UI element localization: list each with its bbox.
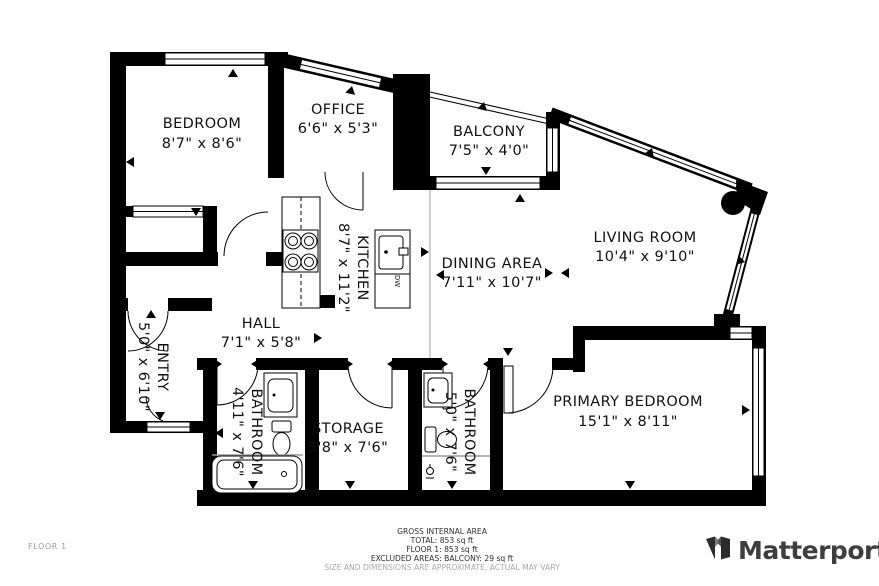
room-label-kitchen: KITCHEN 8'7" x 11'2"	[335, 223, 370, 313]
room-name: BEDROOM	[163, 116, 242, 132]
matterport-logo-icon	[706, 537, 730, 560]
wall	[110, 206, 133, 217]
direction-marker	[345, 85, 357, 95]
room-label-balcony: BALCONY 7'5" x 4'0"	[449, 124, 529, 159]
direction-marker	[228, 69, 238, 77]
stove-icon	[283, 230, 318, 272]
floorplan-canvas: DW	[0, 0, 879, 586]
matterport-wordmark: Matterport	[738, 536, 879, 565]
direction-marker	[483, 360, 490, 369]
direction-marker	[314, 333, 322, 343]
direction-marker	[515, 194, 525, 202]
direction-marker	[503, 348, 513, 356]
dishwasher-icon: DW	[393, 275, 401, 287]
direction-marker	[481, 167, 491, 175]
door-leaf	[504, 366, 513, 413]
sliding-closet-door	[133, 206, 203, 217]
area-title: GROSS INTERNAL AREA	[397, 527, 488, 536]
wall-diagonal-office	[280, 53, 401, 94]
toilet-icon	[272, 421, 291, 456]
matterport-logo: Matterport	[706, 536, 879, 565]
door-arc	[508, 366, 553, 413]
room-name: HALL	[242, 316, 281, 332]
room-label-office: OFFICE 6'6" x 5'3"	[298, 102, 378, 137]
room-label-bedroom: BEDROOM 8'7" x 8'6"	[162, 116, 242, 152]
wall	[266, 252, 282, 266]
footer: FLOOR 1 GROSS INTERNAL AREA TOTAL: 853 s…	[28, 527, 879, 572]
room-name: LIVING ROOM	[593, 230, 696, 246]
floor-label: FLOOR 1	[28, 542, 67, 551]
area-floor1: FLOOR 1: 853 sq ft	[406, 545, 477, 554]
direction-marker	[742, 405, 750, 415]
door-arc	[348, 364, 392, 408]
window	[436, 177, 540, 189]
area-disclaimer: SIZE AND DIMENSIONS ARE APPROXIMATE, ACT…	[324, 563, 560, 572]
room-name: BALCONY	[453, 124, 525, 140]
direction-marker	[251, 360, 258, 369]
room-name: OFFICE	[311, 102, 365, 118]
wall	[197, 358, 215, 370]
direction-marker	[346, 360, 353, 369]
direction-marker	[155, 412, 165, 420]
wall	[110, 52, 126, 433]
wall	[495, 358, 503, 377]
room-dims: 8'7" x 8'6"	[162, 136, 242, 152]
wall	[110, 252, 218, 266]
column-dot	[721, 191, 745, 215]
direction-marker	[215, 360, 222, 369]
direction-marker	[625, 481, 635, 489]
direction-marker	[345, 481, 355, 489]
direction-marker	[421, 247, 429, 257]
room-dims: 7'5" x 4'0"	[449, 143, 529, 159]
direction-marker	[387, 360, 394, 369]
room-name: ENTRY	[154, 343, 170, 392]
wall	[256, 358, 348, 370]
direction-marker	[561, 268, 569, 278]
wall	[552, 358, 585, 370]
area-total: TOTAL: 853 sq ft	[410, 536, 474, 545]
door-arc	[224, 212, 268, 256]
wall	[268, 52, 284, 178]
room-dims: 6'6" x 5'3"	[298, 121, 378, 137]
room-dims: 7'11" x 10'7"	[442, 275, 542, 291]
room-name: PRIMARY BEDROOM	[553, 394, 703, 410]
room-name: BATHROOM	[248, 388, 264, 475]
dishwasher-label: DW	[393, 275, 401, 287]
wall	[408, 358, 422, 506]
window	[753, 348, 764, 476]
wall	[110, 298, 128, 311]
room-name: BATHROOM	[461, 388, 477, 475]
wall	[203, 206, 217, 266]
room-dims: 5'0" x 6'10"	[135, 322, 151, 412]
room-label-storage: STORAGE 5'8" x 7'6"	[308, 421, 388, 456]
room-name: STORAGE	[312, 421, 384, 437]
room-dims: 15'1" x 8'11"	[578, 414, 678, 430]
wall	[168, 298, 212, 311]
room-dims: 4'11" x 7'6"	[229, 387, 245, 477]
shower-icon	[426, 464, 434, 478]
floorplan-page: DW	[0, 0, 879, 586]
room-name: DINING AREA	[442, 256, 543, 272]
area-excluded: EXCLUDED AREAS: BALCONY: 29 sq ft	[371, 554, 513, 563]
window	[165, 53, 265, 65]
room-label-dining-area: DINING AREA 7'11" x 10'7"	[442, 256, 543, 291]
room-label-living-room: LIVING ROOM 10'4" x 9'10"	[593, 230, 696, 265]
room-label-entry: ENTRY 5'0" x 6'10"	[135, 322, 170, 412]
room-dims: 5'0" x 7'6"	[442, 392, 458, 472]
room-label-bathroom-2: BATHROOM 5'0" x 7'6"	[442, 388, 477, 475]
room-dims: 10'4" x 9'10"	[595, 249, 695, 265]
room-label-hall: HALL 7'1" x 5'8"	[221, 316, 301, 351]
wall	[490, 358, 503, 506]
direction-marker	[545, 268, 553, 278]
direction-marker	[441, 360, 448, 369]
balcony-railing	[429, 92, 550, 124]
direction-marker	[477, 101, 489, 111]
sink-icon	[264, 373, 297, 417]
entry-threshold	[147, 422, 190, 432]
door-arc	[325, 172, 363, 210]
room-dims: 5'8" x 7'6"	[308, 440, 388, 456]
room-name: KITCHEN	[354, 235, 370, 301]
wall	[392, 358, 442, 370]
direction-marker	[447, 481, 457, 489]
window	[730, 327, 752, 339]
direction-marker	[126, 157, 134, 167]
direction-marker	[146, 310, 156, 318]
window	[547, 128, 558, 172]
room-label-primary-bedroom: PRIMARY BEDROOM 15'1" x 8'11"	[553, 394, 703, 430]
wall	[393, 74, 430, 190]
room-dims: 7'1" x 5'8"	[221, 335, 301, 351]
room-dims: 8'7" x 11'2"	[335, 223, 351, 313]
area-summary: GROSS INTERNAL AREA TOTAL: 853 sq ft FLO…	[324, 527, 560, 572]
